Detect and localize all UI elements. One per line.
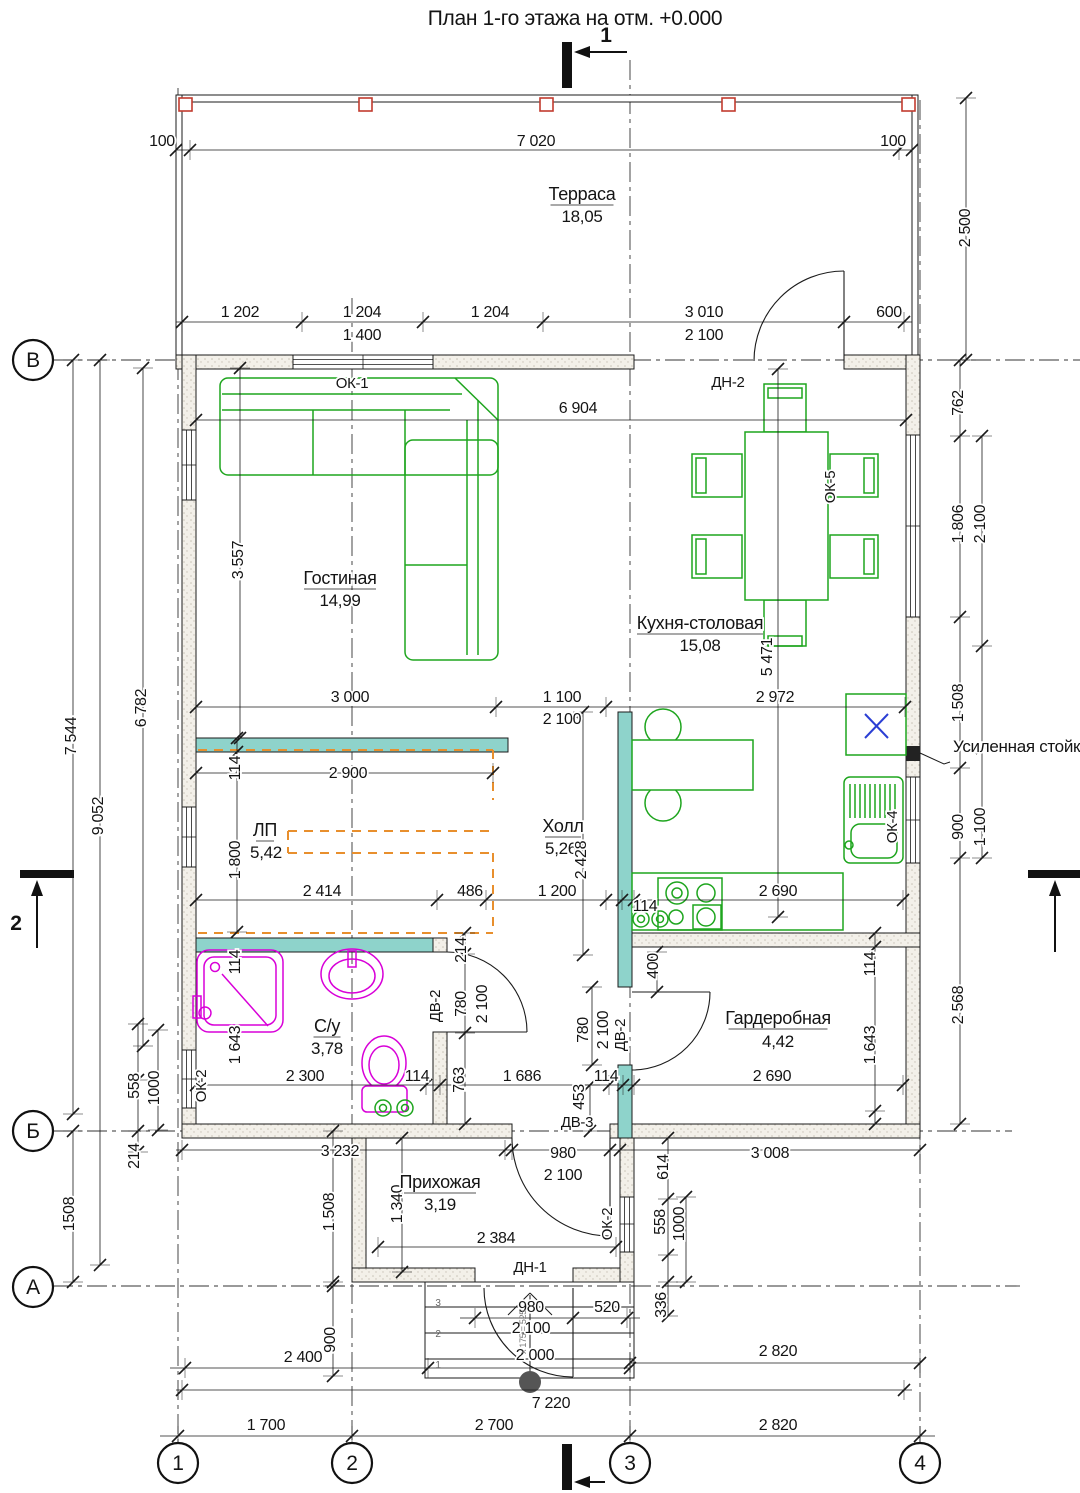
dim-label: 214 <box>453 937 470 963</box>
step-number-3: 3 <box>435 1298 441 1309</box>
dim-label: 1 204 <box>343 304 382 321</box>
dim-label: 3 557 <box>230 540 247 579</box>
dim-label: 3 010 <box>685 304 724 321</box>
dim-label: 6 782 <box>133 688 150 727</box>
window-ok1 <box>293 355 433 369</box>
window-ok4 <box>906 777 920 863</box>
dim-label: 7 220 <box>532 1395 571 1412</box>
door-dv2-ward <box>632 992 710 1070</box>
room-terrace-area: 18,05 <box>561 207 602 226</box>
room-lp: ЛП <box>253 820 277 840</box>
dim-label: 2 100 <box>474 984 491 1023</box>
dim-label: 762 <box>950 390 967 416</box>
room-entry: Прихожая <box>399 1172 480 1192</box>
dim-label: 2 100 <box>595 1010 612 1049</box>
dim-label: 7 020 <box>517 133 556 150</box>
dim-label: 400 <box>645 953 662 979</box>
drawing-sheet: ВБА1234 План 1-го этажа на отм. +0.00012… <box>0 0 1080 1493</box>
dim-label: 780 <box>453 991 470 1017</box>
axis-label-4: 4 <box>914 1452 926 1475</box>
dim-label: 1 643 <box>227 1025 244 1064</box>
axis-marker-1: 1 <box>158 1443 198 1483</box>
door-tag-dn2: ДН-2 <box>711 374 744 391</box>
floor-plan-drawing: ВБА1234 План 1-го этажа на отм. +0.00012… <box>0 0 1080 1493</box>
dim-label: 9 052 <box>90 796 107 835</box>
terrace-post <box>902 98 915 111</box>
section-mark-1-label: 1 <box>600 24 612 47</box>
dim-label: 1 508 <box>950 683 967 722</box>
room-entry-area: 3,19 <box>424 1195 456 1214</box>
room-terrace: Терраса <box>549 184 617 204</box>
dim-label: 1 643 <box>862 1025 879 1064</box>
window-tag-ok2-left: ОК-2 <box>193 1070 210 1103</box>
dim-label: 780 <box>575 1017 592 1043</box>
stair-rise-note: х 175 = 525 <box>518 1310 528 1354</box>
section-mark-2-right <box>1028 870 1080 952</box>
axis-label-3: 3 <box>624 1452 635 1475</box>
dim-label: 600 <box>876 304 902 321</box>
window-tag-ok1: ОК-1 <box>336 375 369 392</box>
axis-label-1: 1 <box>172 1452 183 1475</box>
dim-label: 114 <box>862 951 879 976</box>
axis-marker-Б: Б <box>13 1111 53 1151</box>
room-ward-area: 4,42 <box>762 1032 794 1051</box>
step-number-1: 1 <box>435 1360 441 1371</box>
dim-label: 2 400 <box>284 1349 323 1366</box>
window-tag-ok2-right: ОК-2 <box>599 1208 616 1241</box>
axis-marker-2: 2 <box>332 1443 372 1483</box>
dim-label: 614 <box>655 1154 672 1180</box>
dim-label: 486 <box>457 883 483 900</box>
room-kitchen-area: 15,08 <box>679 636 720 655</box>
terrace-post <box>722 98 735 111</box>
dim-label: 2 900 <box>329 765 368 782</box>
axis-marker-В: В <box>13 340 53 380</box>
dim-label: 558 <box>126 1073 143 1099</box>
dim-label: 1 686 <box>503 1068 542 1085</box>
dim-label: 900 <box>322 1327 339 1353</box>
dining-table-and-chairs <box>692 384 878 646</box>
dim-label: 3 232 <box>321 1143 360 1160</box>
dim-label: 1 400 <box>343 327 382 344</box>
dim-label: 2 820 <box>759 1417 798 1434</box>
axis-label-В: В <box>26 349 40 372</box>
axis-marker-4: 4 <box>900 1443 940 1483</box>
section-mark-2-label: 2 <box>10 912 21 935</box>
door-tag-dv2-wc: ДВ-2 <box>427 990 444 1022</box>
dim-label: 980 <box>550 1145 576 1162</box>
dim-label: 2 972 <box>756 689 795 706</box>
window-living-left <box>182 430 196 500</box>
section-mark-1-top <box>562 42 627 88</box>
dim-label: 453 <box>571 1084 588 1110</box>
dim-label: 3 000 <box>331 689 370 706</box>
dim-label: 1 100 <box>543 689 582 706</box>
window-tag-ok5: ОК-5 <box>822 471 839 504</box>
axis-label-А: А <box>26 1276 40 1299</box>
dim-label: 1508 <box>61 1196 78 1231</box>
dim-label: 2 428 <box>573 840 590 879</box>
dim-label: 1 508 <box>321 1192 338 1231</box>
dim-label: 7 544 <box>63 716 80 755</box>
room-lp-area: 5,42 <box>250 843 282 862</box>
dim-label: 114 <box>227 949 244 974</box>
dim-label: 6 904 <box>559 400 598 417</box>
dim-label: 2 568 <box>950 985 967 1024</box>
axis-marker-3: 3 <box>610 1443 650 1483</box>
room-living: Гостиная <box>303 568 376 588</box>
room-wc-area: 3,78 <box>311 1039 343 1058</box>
dim-label: 3 008 <box>751 1145 790 1162</box>
dim-label: 1 700 <box>247 1417 286 1434</box>
axis-marker-А: А <box>13 1267 53 1307</box>
section-mark-1-bottom <box>562 1444 605 1490</box>
axis-label-Б: Б <box>26 1120 39 1143</box>
note-reinforced-post: Усиленная стойка <box>953 737 1080 756</box>
dim-label: 2 384 <box>477 1230 516 1247</box>
dim-label: 100 <box>149 133 175 150</box>
room-living-area: 14,99 <box>319 591 360 610</box>
dim-label: 763 <box>451 1067 468 1093</box>
step-number-2: 2 <box>435 1329 441 1340</box>
dim-label: 2 700 <box>475 1417 514 1434</box>
dim-label: 1 800 <box>227 840 244 879</box>
room-wc: С/у <box>314 1016 340 1036</box>
dim-label: 2 300 <box>286 1068 325 1085</box>
window-ok5 <box>906 435 920 617</box>
dim-label: 2 100 <box>543 711 582 728</box>
dim-label: 2 414 <box>303 883 342 900</box>
window-tag-ok4: ОК-4 <box>884 811 901 844</box>
room-ward: Гардеробная <box>725 1008 831 1028</box>
dim-label: 2 100 <box>972 504 989 543</box>
dim-label: 1 100 <box>972 807 989 846</box>
dim-label: 100 <box>880 133 906 150</box>
dim-label: 5 471 <box>759 637 776 676</box>
dim-label: 1000 <box>146 1070 163 1105</box>
door-tag-dv2-ward: ДВ-2 <box>612 1019 629 1051</box>
dim-label: 2 100 <box>685 327 724 344</box>
dim-label: 2 500 <box>957 208 974 247</box>
dim-label: 114 <box>633 898 658 915</box>
dim-label: 1 806 <box>950 504 967 543</box>
dim-label: 1 202 <box>221 304 260 321</box>
door-tag-dn1: ДН-1 <box>513 1259 546 1276</box>
section-mark-2-left <box>20 870 74 948</box>
room-kitchen: Кухня-столовая <box>637 613 763 633</box>
axis-label-2: 2 <box>346 1452 357 1475</box>
dim-label: 2 690 <box>759 883 798 900</box>
dim-label: 1000 <box>671 1206 688 1241</box>
window-lp-left <box>182 807 196 867</box>
terrace-post <box>359 98 372 111</box>
dim-label: 1 200 <box>538 883 577 900</box>
sanitary-fixtures <box>193 949 413 1116</box>
room-hall: Холл <box>542 816 583 836</box>
terrace-post <box>179 98 192 111</box>
dimension-lines <box>63 92 992 1446</box>
dim-label: 2 820 <box>759 1343 798 1360</box>
dim-label: 900 <box>950 814 967 840</box>
terrace-post <box>540 98 553 111</box>
bar-counter-with-stools <box>632 709 753 821</box>
dim-label: 558 <box>652 1209 669 1235</box>
dim-label: 214 <box>126 1143 143 1169</box>
dim-label: 114 <box>594 1068 619 1085</box>
dim-label: 1 204 <box>471 304 510 321</box>
window-ok2-right <box>620 1197 634 1252</box>
dim-label: 114 <box>227 755 244 780</box>
dim-label: 336 <box>653 1292 670 1318</box>
door-dn2 <box>754 271 844 361</box>
dim-label: 520 <box>594 1299 620 1316</box>
dim-label: 114 <box>405 1068 430 1085</box>
dim-label: 2 690 <box>753 1068 792 1085</box>
dim-label: 2 100 <box>544 1167 583 1184</box>
door-tag-dv3: ДВ-3 <box>561 1114 593 1131</box>
drawing-title: План 1-го этажа на отм. +0.000 <box>428 7 723 30</box>
